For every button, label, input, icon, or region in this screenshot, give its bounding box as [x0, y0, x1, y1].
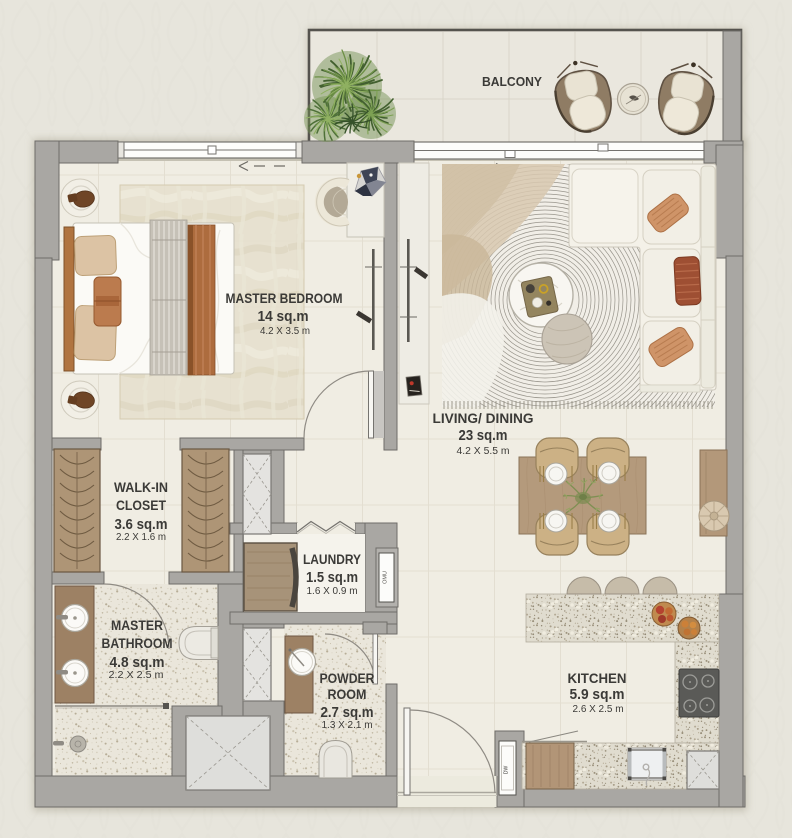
- svg-text:4.2 X 3.5 m: 4.2 X 3.5 m: [260, 326, 310, 337]
- svg-text:OMU: OMU: [383, 571, 389, 584]
- svg-text:23 sq.m: 23 sq.m: [459, 427, 508, 444]
- svg-text:POWDER: POWDER: [320, 671, 375, 686]
- svg-text:1.6 X 0.9 m: 1.6 X 0.9 m: [307, 586, 358, 597]
- svg-text:LAUNDRY: LAUNDRY: [303, 552, 361, 567]
- svg-text:4.2 X 5.5 m: 4.2 X 5.5 m: [457, 446, 510, 457]
- svg-text:5.9 sq.m: 5.9 sq.m: [570, 686, 625, 703]
- svg-text:2.2 X 2.5 m: 2.2 X 2.5 m: [109, 670, 164, 681]
- svg-text:BALCONY: BALCONY: [482, 75, 543, 89]
- svg-text:ROOM: ROOM: [328, 687, 367, 702]
- svg-text:KITCHEN: KITCHEN: [568, 671, 627, 686]
- svg-text:2.2 X 1.6 m: 2.2 X 1.6 m: [116, 532, 166, 543]
- svg-text:DW: DW: [504, 766, 510, 775]
- svg-text:2.6 X 2.5 m: 2.6 X 2.5 m: [573, 704, 624, 715]
- svg-text:14 sq.m: 14 sq.m: [258, 308, 309, 325]
- svg-text:MASTER BEDROOM: MASTER BEDROOM: [226, 291, 343, 306]
- svg-text:MASTER: MASTER: [111, 618, 163, 633]
- svg-text:3.6 sq.m: 3.6 sq.m: [115, 516, 168, 533]
- svg-text:WALK-IN: WALK-IN: [114, 480, 168, 495]
- svg-text:LIVING/ DINING: LIVING/ DINING: [433, 411, 534, 426]
- svg-text:1.5 sq.m: 1.5 sq.m: [306, 569, 358, 586]
- svg-text:CLOSET: CLOSET: [116, 498, 167, 513]
- svg-text:1.3 X 2.1 m: 1.3 X 2.1 m: [322, 720, 373, 731]
- svg-text:2.7 sq.m: 2.7 sq.m: [321, 704, 374, 721]
- svg-text:BATHROOM: BATHROOM: [102, 636, 173, 651]
- svg-text:4.8 sq.m: 4.8 sq.m: [110, 654, 165, 671]
